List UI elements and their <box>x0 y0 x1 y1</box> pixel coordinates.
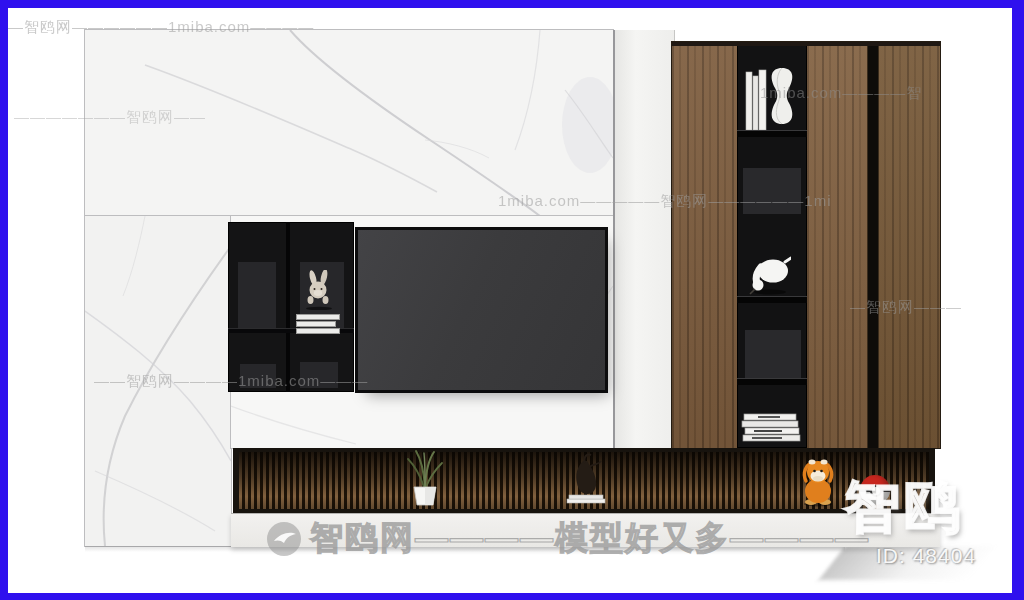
shelf-divider <box>286 222 290 392</box>
stacked-books <box>740 412 802 444</box>
dark-sculpture-decor <box>563 451 609 507</box>
wood-panel <box>672 42 737 448</box>
wall-shelf-unit <box>228 222 354 392</box>
render-canvas: —智鸥网——————1miba.com———— 1miba.com————智 —… <box>0 0 1024 600</box>
media-console-niche <box>233 448 935 513</box>
book <box>296 321 336 327</box>
watermark-row: 1miba.com—————智鸥网——————1mi <box>498 192 832 211</box>
bird-logo-icon <box>266 521 302 557</box>
tv <box>355 227 608 393</box>
watermark-row: —智鸥网——————1miba.com———— <box>8 18 314 37</box>
watermark-row: 1miba.com————智 <box>760 84 922 103</box>
watermark-row: —智鸥网——— <box>850 298 962 317</box>
tv-screen <box>358 230 605 390</box>
cabinet-top-edge <box>672 42 940 46</box>
watermark-row: ———————智鸥网—— <box>14 108 206 127</box>
shelf-cell-back <box>745 330 801 378</box>
book <box>296 314 340 320</box>
rabbit-plush-figurine <box>296 270 342 334</box>
bird-figurine <box>747 254 791 296</box>
brand-watermark: 智鸥网————模型好又多———— <box>266 516 870 561</box>
watermark-row: ——智鸥网————1miba.com——— <box>94 372 368 391</box>
book-stack <box>296 313 340 334</box>
shelf-board <box>737 378 807 385</box>
shelf-board <box>737 130 807 137</box>
psyduck-figurine <box>798 455 838 507</box>
site-logo-large: 智鸥 <box>844 470 964 546</box>
shelf-cell-back <box>238 262 276 328</box>
model-id-text: ID: 48404 <box>876 544 976 568</box>
potted-grass-plant <box>402 449 448 507</box>
brand-watermark-text: 智鸥网————模型好又多———— <box>310 516 870 561</box>
white-divider-panel <box>613 30 675 448</box>
book <box>296 328 340 334</box>
shelf-board <box>737 296 807 303</box>
